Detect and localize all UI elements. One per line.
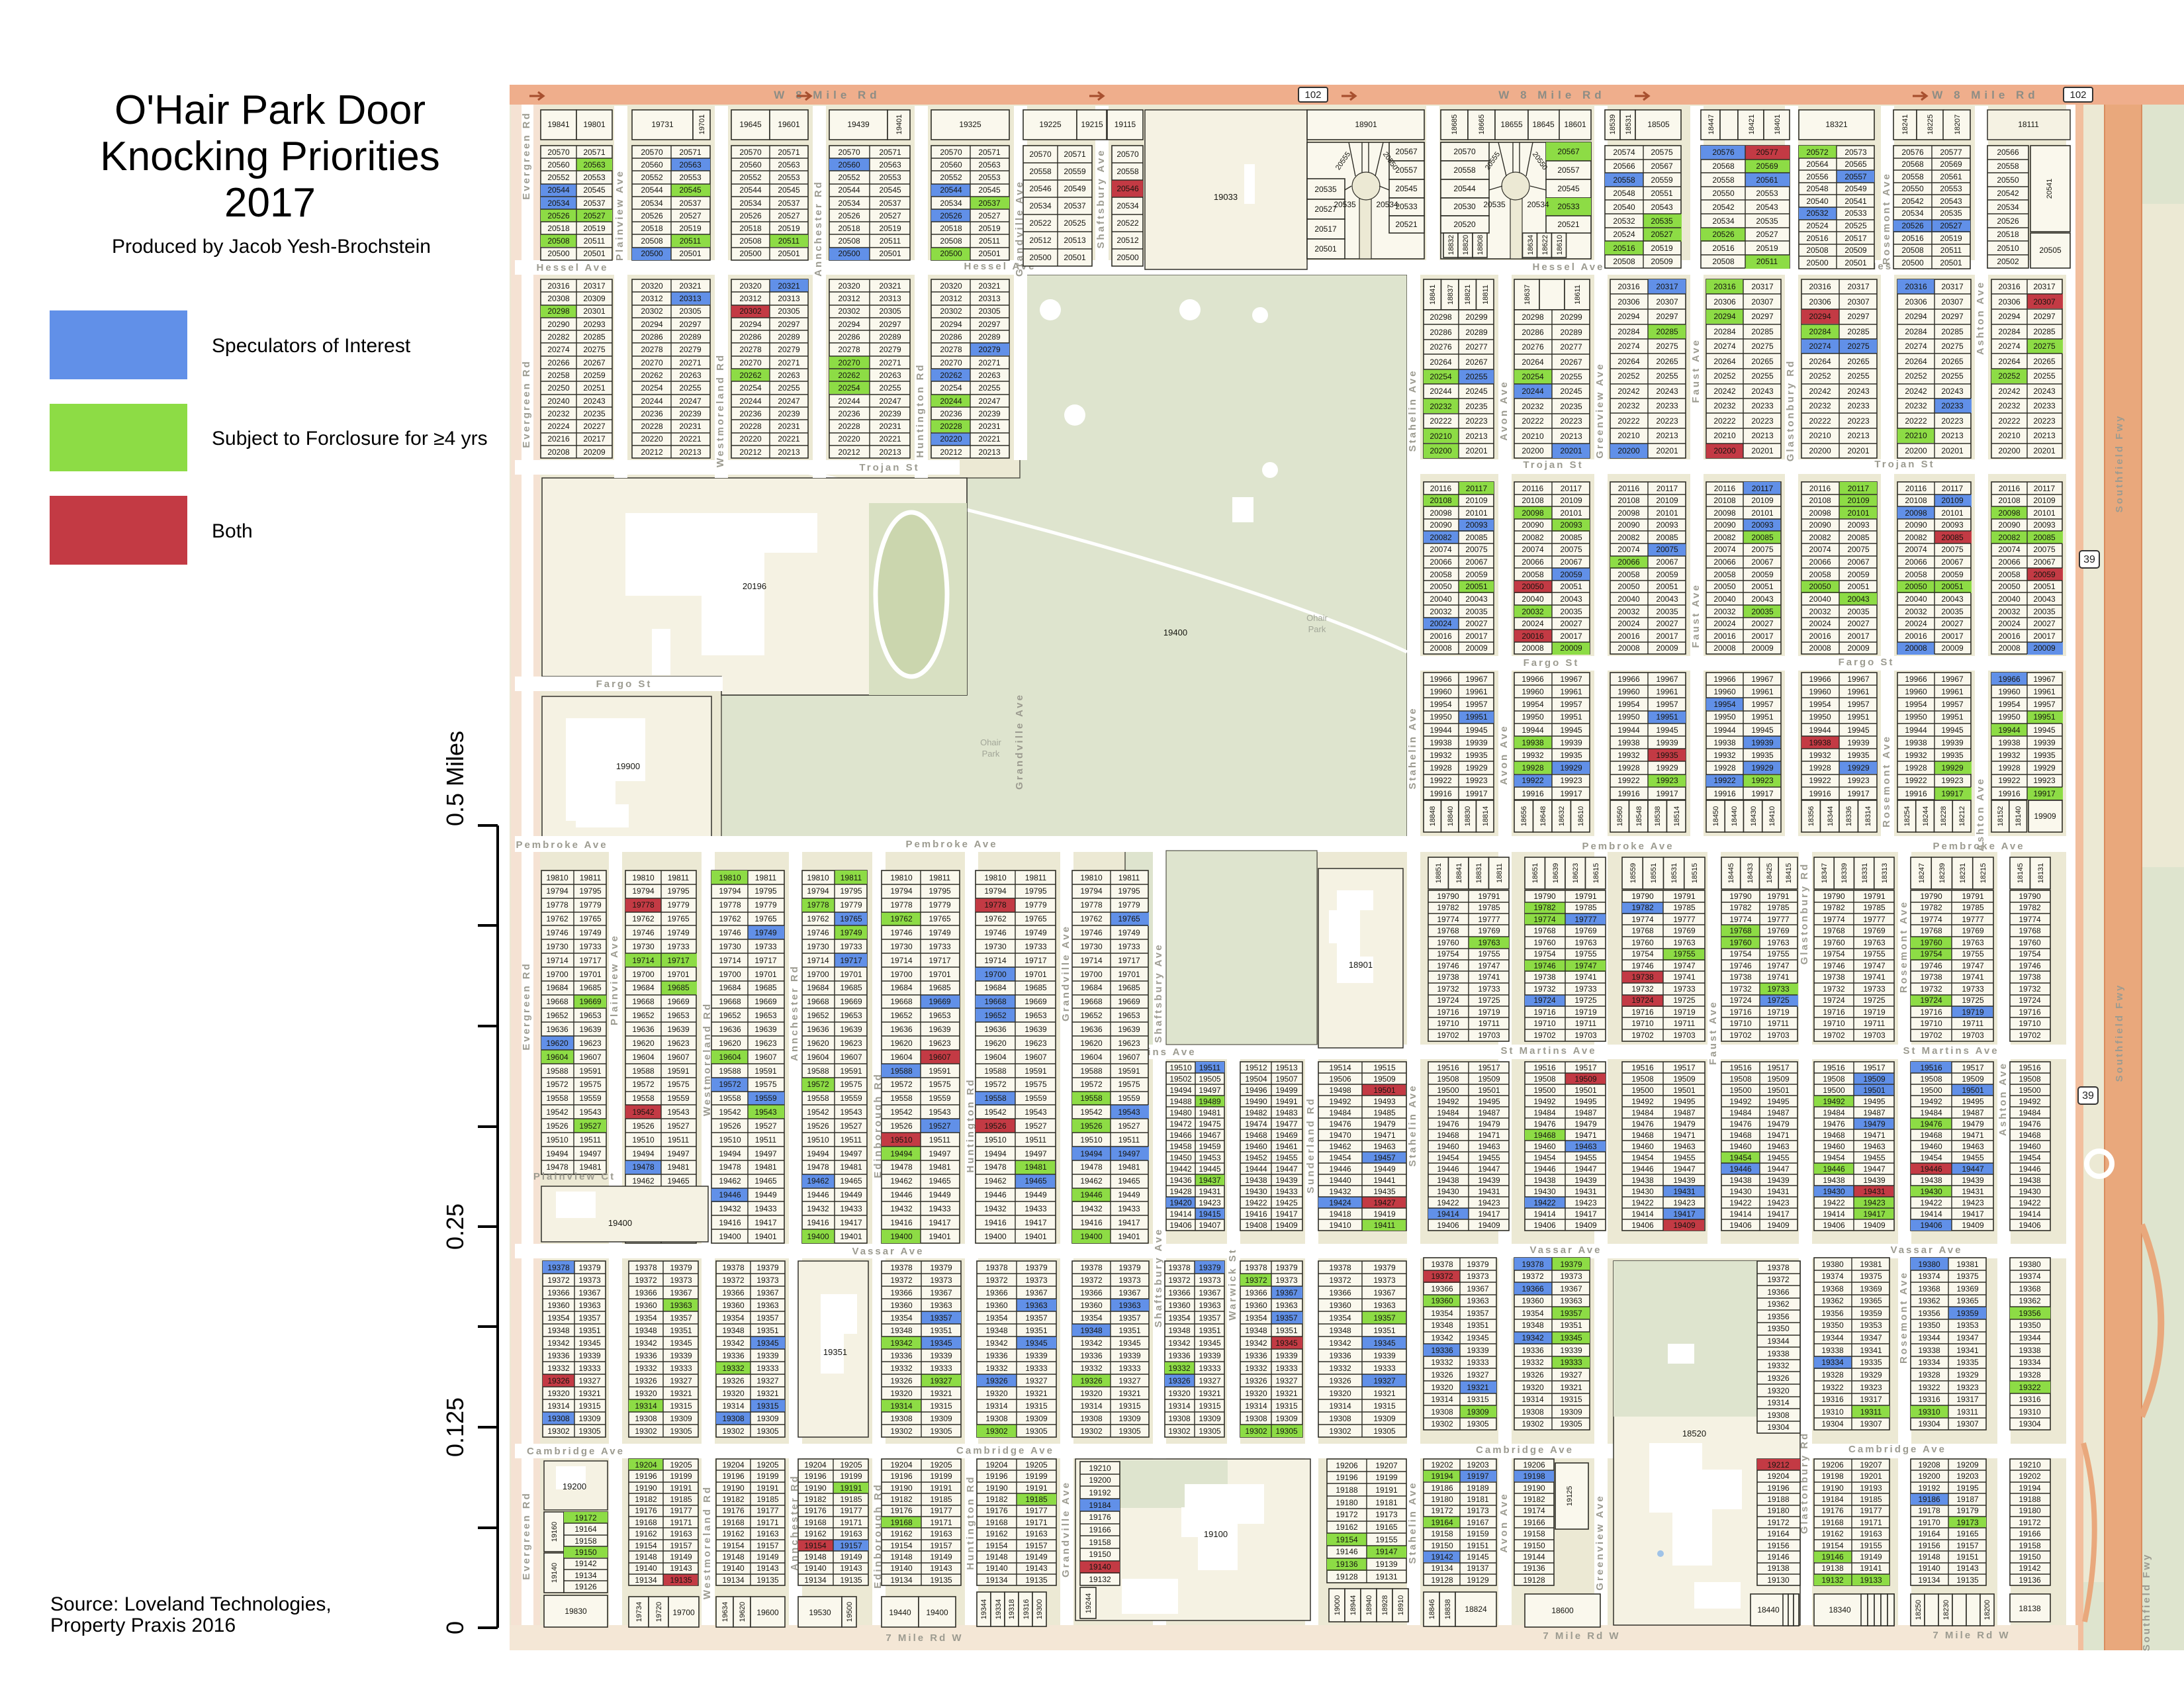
svg-text:18648: 18648 <box>1539 806 1547 827</box>
svg-text:19406: 19406 <box>1920 1221 1942 1230</box>
svg-text:20519: 20519 <box>778 224 800 233</box>
svg-text:20286: 20286 <box>641 332 663 342</box>
svg-text:19416: 19416 <box>890 1218 913 1227</box>
svg-text:19746: 19746 <box>632 928 655 937</box>
svg-text:20116: 20116 <box>1714 484 1736 493</box>
svg-text:18538: 18538 <box>1654 806 1662 827</box>
svg-text:19478: 19478 <box>807 1162 829 1172</box>
svg-text:18940: 18940 <box>1365 1595 1373 1616</box>
svg-text:19961: 19961 <box>1465 687 1488 696</box>
svg-text:19148: 19148 <box>890 1552 913 1562</box>
svg-text:19433: 19433 <box>840 1204 862 1213</box>
svg-text:19747: 19747 <box>1863 961 1886 970</box>
svg-text:20255: 20255 <box>778 383 800 393</box>
svg-text:20535: 20535 <box>1314 185 1337 194</box>
svg-text:19483: 19483 <box>1275 1108 1298 1117</box>
svg-text:18851: 18851 <box>1435 863 1443 884</box>
svg-text:19332: 19332 <box>1767 1361 1790 1370</box>
svg-text:19733: 19733 <box>1673 984 1696 994</box>
svg-text:19684: 19684 <box>984 983 1007 992</box>
svg-text:20243: 20243 <box>1941 387 1964 396</box>
svg-text:20532: 20532 <box>1613 216 1635 226</box>
svg-text:20109: 20109 <box>1465 496 1488 505</box>
svg-text:20284: 20284 <box>1713 327 1736 336</box>
svg-text:20516: 20516 <box>1613 244 1635 253</box>
svg-text:20221: 20221 <box>778 434 800 444</box>
svg-text:19304: 19304 <box>1767 1423 1790 1432</box>
svg-text:20534: 20534 <box>641 199 663 208</box>
svg-text:20525: 20525 <box>1844 221 1867 230</box>
svg-text:19375: 19375 <box>1860 1272 1882 1281</box>
svg-text:20117: 20117 <box>1848 484 1870 493</box>
svg-text:19379: 19379 <box>1373 1263 1396 1272</box>
svg-text:19738: 19738 <box>1729 972 1752 982</box>
svg-text:20302: 20302 <box>940 306 962 316</box>
svg-text:19790: 19790 <box>1533 892 1556 901</box>
svg-text:20043: 20043 <box>1941 594 1964 604</box>
svg-text:19738: 19738 <box>1437 972 1459 982</box>
svg-text:19543: 19543 <box>667 1107 690 1117</box>
svg-text:19923: 19923 <box>1656 776 1678 785</box>
svg-text:19149: 19149 <box>1025 1552 1048 1562</box>
svg-text:19714: 19714 <box>807 956 829 965</box>
svg-text:20101: 20101 <box>1847 508 1870 518</box>
svg-text:20535: 20535 <box>1334 200 1356 209</box>
svg-text:19357: 19357 <box>930 1313 952 1323</box>
svg-text:20277: 20277 <box>1465 342 1488 352</box>
svg-text:19328: 19328 <box>1918 1370 1940 1380</box>
svg-text:19716: 19716 <box>1729 1008 1752 1017</box>
svg-text:19575: 19575 <box>667 1080 690 1089</box>
svg-text:20294: 20294 <box>1809 312 1831 321</box>
svg-text:19939: 19939 <box>1465 738 1488 747</box>
svg-text:19378: 19378 <box>1522 1260 1544 1269</box>
svg-text:19714: 19714 <box>1080 956 1103 965</box>
svg-text:19373: 19373 <box>1199 1276 1221 1285</box>
svg-text:20035: 20035 <box>1941 607 1964 616</box>
svg-text:19765: 19765 <box>1118 914 1140 923</box>
svg-text:20059: 20059 <box>1656 570 1678 579</box>
svg-text:19967: 19967 <box>1465 675 1488 684</box>
svg-text:19960: 19960 <box>1430 687 1452 696</box>
svg-text:20550: 20550 <box>1997 175 2019 185</box>
svg-text:19763: 19763 <box>1767 938 1790 947</box>
svg-text:19733: 19733 <box>754 942 777 951</box>
svg-text:19760: 19760 <box>1823 938 1845 947</box>
svg-text:20524: 20524 <box>1613 230 1635 239</box>
svg-text:19790: 19790 <box>1729 892 1752 901</box>
svg-text:20535: 20535 <box>1651 216 1673 226</box>
svg-text:19135: 19135 <box>930 1575 952 1585</box>
svg-text:20200: 20200 <box>1905 446 1927 455</box>
svg-text:20213: 20213 <box>1560 432 1582 441</box>
svg-text:19516: 19516 <box>1729 1063 1752 1072</box>
svg-text:20517: 20517 <box>1314 224 1337 234</box>
svg-text:18215: 18215 <box>1979 863 1987 884</box>
svg-text:19363: 19363 <box>1373 1301 1396 1310</box>
svg-text:20279: 20279 <box>879 345 901 354</box>
svg-text:19321: 19321 <box>1467 1383 1489 1392</box>
svg-text:19967: 19967 <box>1847 675 1870 684</box>
svg-text:19369: 19369 <box>1956 1284 1979 1293</box>
svg-text:19414: 19414 <box>1437 1209 1459 1219</box>
svg-text:20116: 20116 <box>1999 484 2021 493</box>
svg-text:19438: 19438 <box>1631 1176 1654 1185</box>
svg-text:Huntington Rd: Huntington Rd <box>965 1475 976 1570</box>
svg-text:19710: 19710 <box>1631 1019 1654 1028</box>
svg-text:19304: 19304 <box>1821 1419 1844 1429</box>
svg-text:20275: 20275 <box>583 345 606 354</box>
svg-text:20101: 20101 <box>2033 508 2056 518</box>
svg-text:19329: 19329 <box>1860 1370 1882 1380</box>
svg-text:19460: 19460 <box>2019 1142 2041 1151</box>
svg-text:19171: 19171 <box>670 1518 692 1527</box>
svg-text:19790: 19790 <box>1920 892 1942 901</box>
svg-text:19332: 19332 <box>1431 1358 1453 1367</box>
svg-text:19923: 19923 <box>1560 776 1582 785</box>
svg-text:19572: 19572 <box>890 1080 913 1089</box>
svg-text:20210: 20210 <box>1617 431 1640 440</box>
svg-text:19428: 19428 <box>1169 1187 1192 1196</box>
svg-text:19363: 19363 <box>1275 1301 1298 1310</box>
svg-text:20058: 20058 <box>1713 570 1736 579</box>
svg-text:20286: 20286 <box>838 332 860 342</box>
svg-text:19710: 19710 <box>1823 1019 1845 1028</box>
svg-text:20098: 20098 <box>1809 508 1831 518</box>
svg-text:20008: 20008 <box>1905 643 1927 653</box>
svg-text:19700: 19700 <box>984 970 1007 979</box>
svg-text:19154: 19154 <box>635 1541 657 1550</box>
svg-text:19305: 19305 <box>578 1427 601 1436</box>
svg-text:19316: 19316 <box>1918 1395 1940 1404</box>
svg-text:20258: 20258 <box>547 371 570 380</box>
svg-text:19939: 19939 <box>2033 738 2056 747</box>
svg-text:St Martins Ave: St Martins Ave <box>1903 1045 1999 1056</box>
svg-text:19830: 19830 <box>565 1607 587 1616</box>
svg-text:20093: 20093 <box>1465 520 1488 530</box>
svg-text:19954: 19954 <box>1522 700 1544 709</box>
svg-text:19454: 19454 <box>1329 1153 1351 1162</box>
svg-text:19333: 19333 <box>1467 1358 1489 1367</box>
svg-text:19401: 19401 <box>754 1232 777 1241</box>
svg-text:19225: 19225 <box>1039 120 1062 129</box>
svg-text:Subject to Forclosure for ≥4 y: Subject to Forclosure for ≥4 yrs <box>212 428 488 449</box>
svg-text:20233: 20233 <box>1656 401 1678 410</box>
svg-text:19359: 19359 <box>1860 1309 1882 1318</box>
svg-text:19746: 19746 <box>1920 961 1942 970</box>
svg-text:20024: 20024 <box>1809 619 1831 628</box>
svg-text:19494: 19494 <box>984 1149 1007 1158</box>
svg-text:19542: 19542 <box>719 1107 741 1117</box>
svg-text:19400: 19400 <box>926 1608 948 1617</box>
svg-text:19717: 19717 <box>840 956 862 965</box>
svg-text:19724: 19724 <box>1437 996 1459 1005</box>
svg-text:20518: 20518 <box>641 224 663 233</box>
svg-text:19141: 19141 <box>1860 1564 1882 1573</box>
svg-text:20289: 20289 <box>978 332 1001 342</box>
svg-text:19575: 19575 <box>1118 1080 1140 1089</box>
svg-text:19484: 19484 <box>1437 1108 1459 1117</box>
svg-text:20543: 20543 <box>1651 203 1673 212</box>
svg-text:19309: 19309 <box>930 1414 952 1423</box>
svg-text:20212: 20212 <box>739 447 762 457</box>
svg-text:19327: 19327 <box>578 1376 601 1385</box>
svg-text:Evergreen Rd: Evergreen Rd <box>521 111 532 200</box>
svg-text:19710: 19710 <box>2019 1019 2041 1028</box>
svg-text:18901: 18901 <box>1349 960 1373 970</box>
svg-text:19334: 19334 <box>1821 1358 1844 1367</box>
svg-text:20009: 20009 <box>1560 643 1582 653</box>
svg-text:20017: 20017 <box>1560 632 1582 641</box>
svg-text:19182: 19182 <box>1523 1495 1545 1504</box>
svg-text:19139: 19139 <box>1375 1560 1398 1569</box>
svg-text:18247: 18247 <box>1918 863 1926 884</box>
svg-text:19511: 19511 <box>1118 1135 1140 1145</box>
svg-text:19379: 19379 <box>756 1263 779 1272</box>
svg-text:19190: 19190 <box>985 1483 1008 1493</box>
svg-text:19463: 19463 <box>1478 1142 1500 1151</box>
svg-text:20252: 20252 <box>1998 371 2021 381</box>
svg-text:20557: 20557 <box>1557 165 1580 175</box>
svg-text:19155: 19155 <box>1375 1535 1398 1544</box>
svg-text:20223: 20223 <box>1847 416 1870 426</box>
svg-text:19315: 19315 <box>930 1401 952 1411</box>
svg-text:19363: 19363 <box>1560 1296 1582 1305</box>
svg-text:19176: 19176 <box>985 1506 1008 1515</box>
svg-text:2017: 2017 <box>224 180 316 226</box>
svg-text:18665: 18665 <box>1478 115 1486 135</box>
svg-text:19928: 19928 <box>1809 763 1831 773</box>
svg-text:20267: 20267 <box>583 358 606 367</box>
svg-text:19559: 19559 <box>929 1094 951 1103</box>
svg-text:19198: 19198 <box>1821 1472 1844 1481</box>
svg-text:19957: 19957 <box>1560 700 1582 709</box>
svg-text:20501: 20501 <box>1064 253 1086 262</box>
svg-text:20236: 20236 <box>739 409 762 418</box>
svg-text:19653: 19653 <box>1024 1011 1047 1020</box>
svg-text:20254: 20254 <box>838 383 860 393</box>
svg-text:19149: 19149 <box>840 1552 862 1562</box>
svg-text:19367: 19367 <box>1560 1284 1582 1293</box>
svg-text:20016: 20016 <box>1430 632 1452 641</box>
svg-text:19653: 19653 <box>840 1011 862 1020</box>
svg-text:19181: 19181 <box>1375 1498 1398 1507</box>
svg-text:20255: 20255 <box>2033 371 2056 381</box>
svg-text:18531: 18531 <box>1670 863 1678 884</box>
svg-text:19669: 19669 <box>579 997 602 1006</box>
svg-text:19447: 19447 <box>1478 1164 1500 1174</box>
svg-text:19372: 19372 <box>1080 1276 1103 1285</box>
svg-text:19149: 19149 <box>670 1552 692 1562</box>
svg-text:20561: 20561 <box>1756 175 1778 185</box>
svg-text:19158: 19158 <box>2019 1541 2041 1550</box>
svg-text:19909: 19909 <box>2034 812 2056 821</box>
svg-text:19128: 19128 <box>1336 1572 1358 1581</box>
svg-text:20075: 20075 <box>2033 545 2056 554</box>
svg-text:19172: 19172 <box>1336 1510 1358 1519</box>
svg-text:19436: 19436 <box>1169 1176 1192 1185</box>
svg-text:19701: 19701 <box>840 970 862 979</box>
svg-text:19559: 19559 <box>1118 1094 1140 1103</box>
svg-text:20313: 20313 <box>778 294 800 303</box>
svg-text:20035: 20035 <box>1465 607 1488 616</box>
svg-text:19746: 19746 <box>1437 961 1459 970</box>
svg-text:18145: 18145 <box>2017 863 2025 884</box>
svg-text:20263: 20263 <box>679 371 702 380</box>
svg-text:19684: 19684 <box>632 983 655 992</box>
svg-text:Rosemont Ave: Rosemont Ave <box>1881 172 1892 265</box>
svg-text:19191: 19191 <box>756 1483 779 1493</box>
svg-text:19732: 19732 <box>2019 984 2041 994</box>
svg-text:19738: 19738 <box>1823 972 1845 982</box>
svg-text:20546: 20546 <box>1116 184 1139 193</box>
svg-text:19179: 19179 <box>1956 1506 1979 1515</box>
svg-text:19939: 19939 <box>1560 738 1582 747</box>
svg-text:19409: 19409 <box>1275 1221 1298 1230</box>
svg-text:19778: 19778 <box>719 900 741 910</box>
svg-text:19527: 19527 <box>840 1121 862 1131</box>
svg-text:19801: 19801 <box>583 120 606 129</box>
svg-text:19199: 19199 <box>840 1472 862 1481</box>
svg-text:20093: 20093 <box>1847 520 1870 530</box>
svg-text:19668: 19668 <box>546 997 569 1006</box>
svg-text:19494: 19494 <box>632 1149 655 1158</box>
svg-text:20075: 20075 <box>1941 545 1964 554</box>
svg-text:19684: 19684 <box>546 983 569 992</box>
svg-text:19367: 19367 <box>930 1288 952 1297</box>
svg-text:19417: 19417 <box>1118 1218 1140 1227</box>
svg-text:20032: 20032 <box>1713 607 1736 616</box>
svg-text:19157: 19157 <box>756 1541 779 1550</box>
svg-text:19463: 19463 <box>1673 1142 1696 1151</box>
svg-text:19307: 19307 <box>1860 1419 1882 1429</box>
svg-text:20040: 20040 <box>1522 594 1544 604</box>
svg-text:19367: 19367 <box>756 1288 779 1297</box>
svg-text:19165: 19165 <box>1375 1523 1398 1532</box>
svg-text:19778: 19778 <box>546 900 569 910</box>
svg-text:19460: 19460 <box>1920 1142 1942 1151</box>
svg-text:20526: 20526 <box>838 211 860 220</box>
svg-text:20289: 20289 <box>679 332 702 342</box>
svg-text:19447: 19447 <box>1673 1164 1696 1174</box>
svg-text:19754: 19754 <box>1533 949 1556 959</box>
svg-text:19724: 19724 <box>1631 996 1654 1005</box>
svg-text:20543: 20543 <box>1756 203 1778 212</box>
svg-text:19372: 19372 <box>1245 1276 1267 1285</box>
svg-text:20544: 20544 <box>739 185 762 195</box>
svg-text:20090: 20090 <box>1713 520 1736 530</box>
svg-text:20533: 20533 <box>1557 202 1580 211</box>
svg-text:19409: 19409 <box>1574 1221 1597 1230</box>
svg-text:18651: 18651 <box>1531 863 1539 884</box>
svg-text:19711: 19711 <box>1479 1019 1500 1028</box>
svg-text:19367: 19367 <box>1373 1288 1396 1297</box>
svg-text:19765: 19765 <box>1024 914 1047 923</box>
svg-text:19446: 19446 <box>1823 1164 1845 1174</box>
svg-text:19201: 19201 <box>1860 1472 1882 1481</box>
svg-text:20228: 20228 <box>641 422 663 431</box>
svg-text:20517: 20517 <box>1844 234 1867 243</box>
svg-text:19724: 19724 <box>1533 996 1556 1005</box>
svg-text:19158: 19158 <box>1089 1538 1111 1547</box>
svg-text:20074: 20074 <box>1998 545 2021 554</box>
svg-text:19652: 19652 <box>632 1011 655 1020</box>
svg-text:19332: 19332 <box>722 1364 745 1373</box>
svg-text:19954: 19954 <box>1998 700 2021 709</box>
svg-text:20059: 20059 <box>1941 570 1964 579</box>
svg-text:20307: 20307 <box>1941 297 1964 306</box>
svg-text:19372: 19372 <box>547 1276 570 1285</box>
svg-text:18425: 18425 <box>1766 863 1774 884</box>
svg-text:19348: 19348 <box>1431 1321 1453 1330</box>
svg-text:20533: 20533 <box>1395 202 1418 211</box>
svg-text:19480: 19480 <box>1169 1108 1192 1117</box>
svg-text:20222: 20222 <box>1809 416 1831 426</box>
svg-text:19791: 19791 <box>1863 892 1886 901</box>
svg-text:19302: 19302 <box>890 1427 913 1436</box>
svg-text:19176: 19176 <box>1821 1506 1844 1515</box>
svg-text:19922: 19922 <box>1522 776 1544 785</box>
svg-text:19446: 19446 <box>1729 1164 1752 1174</box>
svg-text:20058: 20058 <box>1998 570 2021 579</box>
svg-text:20301: 20301 <box>583 306 606 316</box>
svg-text:19471: 19471 <box>1478 1131 1500 1140</box>
svg-text:19190: 19190 <box>1821 1483 1844 1493</box>
svg-text:19719: 19719 <box>1673 1008 1696 1017</box>
svg-text:19507: 19507 <box>1275 1074 1298 1084</box>
svg-text:19185: 19185 <box>756 1495 779 1504</box>
svg-text:20043: 20043 <box>1847 594 1870 604</box>
svg-text:19157: 19157 <box>670 1541 692 1550</box>
svg-text:19811: 19811 <box>580 873 602 882</box>
svg-text:19495: 19495 <box>1574 1097 1597 1106</box>
svg-text:19339: 19339 <box>670 1351 692 1360</box>
svg-text:19954: 19954 <box>1617 700 1640 709</box>
svg-text:20550: 20550 <box>1901 184 1924 193</box>
svg-text:19305: 19305 <box>1025 1427 1048 1436</box>
svg-text:20278: 20278 <box>739 345 762 354</box>
svg-text:19308: 19308 <box>1080 1414 1103 1423</box>
svg-text:19196: 19196 <box>890 1472 913 1481</box>
svg-text:20228: 20228 <box>739 422 762 431</box>
svg-text:19159: 19159 <box>1467 1529 1489 1538</box>
svg-text:19700: 19700 <box>546 970 569 979</box>
svg-text:19417: 19417 <box>929 1218 951 1227</box>
svg-text:19732: 19732 <box>1920 984 1942 994</box>
svg-text:20566: 20566 <box>1997 148 2019 157</box>
svg-text:20267: 20267 <box>1560 357 1582 367</box>
svg-text:19362: 19362 <box>1767 1299 1790 1309</box>
svg-text:20275: 20275 <box>1751 342 1774 351</box>
svg-text:19406: 19406 <box>1729 1221 1752 1230</box>
svg-text:19327: 19327 <box>1025 1376 1048 1385</box>
svg-text:20516: 20516 <box>1806 234 1829 243</box>
svg-text:20027: 20027 <box>1656 619 1678 628</box>
svg-text:18314: 18314 <box>1864 806 1872 827</box>
svg-text:19357: 19357 <box>1118 1313 1141 1323</box>
svg-text:19336: 19336 <box>890 1351 913 1360</box>
svg-text:20532: 20532 <box>1806 209 1829 218</box>
svg-text:19366: 19366 <box>1767 1288 1790 1297</box>
svg-text:19446: 19446 <box>1920 1164 1942 1174</box>
svg-text:20085: 20085 <box>1465 533 1488 542</box>
svg-text:20519: 20519 <box>1756 244 1778 253</box>
svg-text:19929: 19929 <box>2033 763 2056 773</box>
svg-text:19652: 19652 <box>890 1011 913 1020</box>
svg-text:20212: 20212 <box>940 447 962 457</box>
svg-text:20575: 20575 <box>1651 148 1673 157</box>
svg-text:19336: 19336 <box>985 1351 1008 1360</box>
